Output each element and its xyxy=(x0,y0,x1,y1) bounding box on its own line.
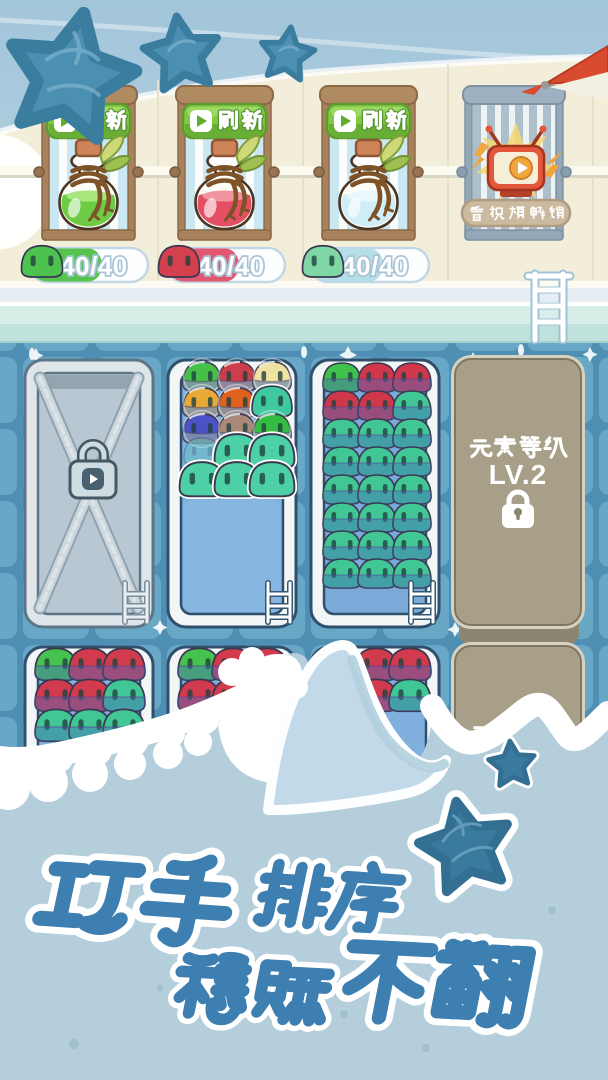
svg-text:LV.2: LV.2 xyxy=(489,459,547,490)
